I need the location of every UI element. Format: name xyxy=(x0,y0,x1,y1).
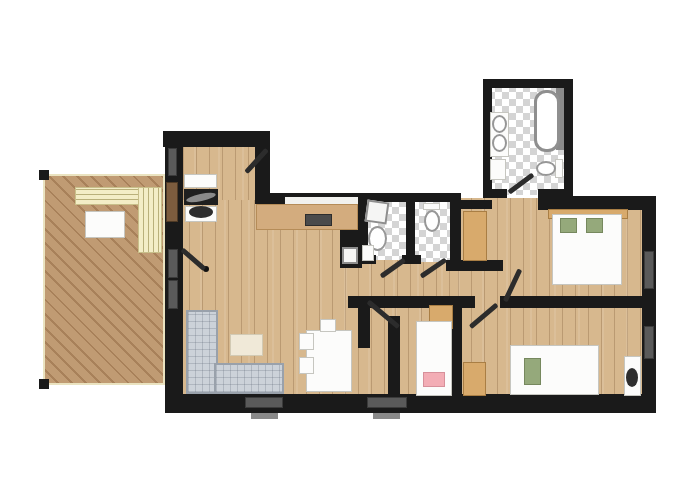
wall-bathroom-right xyxy=(564,79,573,198)
kitchen-backsplash xyxy=(285,197,358,204)
wc2-cistern xyxy=(423,203,440,210)
wall-right-wing-top xyxy=(538,196,656,210)
deck-post-bottom-left xyxy=(39,379,49,389)
wall-wc-divider xyxy=(406,196,415,260)
sliding-door-living-left-bottom xyxy=(168,280,178,309)
dining-chair-2 xyxy=(299,357,314,374)
bathroom-toilet xyxy=(536,161,556,176)
master-wardrobe xyxy=(463,211,487,261)
wall-bathroom-bottom-left xyxy=(483,189,507,198)
deck-table xyxy=(85,211,125,238)
wall-kids-left xyxy=(388,316,400,396)
coffee-table xyxy=(230,334,263,356)
wall-exterior-right xyxy=(642,196,656,413)
bedroom2-chair-blob xyxy=(626,368,638,387)
wall-exterior-bottom xyxy=(165,394,656,413)
window-sill-bottom-2 xyxy=(373,413,400,419)
window-right-2 xyxy=(644,326,654,359)
dining-chair-1 xyxy=(299,333,314,350)
kitchen-cooktop xyxy=(305,214,332,226)
window-bottom-2 xyxy=(367,397,407,408)
master-pillow-left xyxy=(560,218,577,233)
dining-chair-3 xyxy=(320,319,336,332)
bathroom-basin-2 xyxy=(492,134,507,152)
window-bottom-1 xyxy=(245,397,283,408)
bathroom-basin-1 xyxy=(492,115,507,133)
sliding-door-living-left-top xyxy=(168,249,178,278)
wall-kids-right xyxy=(452,296,462,396)
deck-bench-horizontal xyxy=(75,187,141,205)
kitchen-sink-unit xyxy=(342,247,358,264)
wall-bathroom-top xyxy=(483,79,573,88)
floor-plan xyxy=(0,0,700,500)
wc2-toilet xyxy=(424,210,440,232)
master-pillow-right xyxy=(586,218,603,233)
entry-bench-blob xyxy=(189,206,213,218)
window-entry-left xyxy=(168,148,177,176)
kids-pillow-pink xyxy=(423,372,445,387)
wall-corridor-south-b xyxy=(500,296,642,308)
wall-vestibule-top xyxy=(450,200,492,209)
window-right-1 xyxy=(644,251,654,289)
deck-bench-vertical xyxy=(138,187,162,253)
bedroom2-pillow-green xyxy=(524,358,541,385)
bathroom-toilet-cistern xyxy=(555,159,563,178)
washing-machine xyxy=(365,200,390,225)
deck-access-door xyxy=(166,182,178,222)
window-sill-bottom-1 xyxy=(251,413,278,419)
bedroom2-cabinet xyxy=(463,362,486,396)
sofa-corner-horizontal xyxy=(214,363,284,394)
bathroom-cabinet xyxy=(490,159,506,180)
wall-master-entry-stub xyxy=(446,260,503,271)
wc1-shelf xyxy=(362,245,374,261)
deck-post-top-left xyxy=(39,170,49,180)
bathtub xyxy=(534,90,560,152)
entry-closet-upper xyxy=(184,174,217,188)
